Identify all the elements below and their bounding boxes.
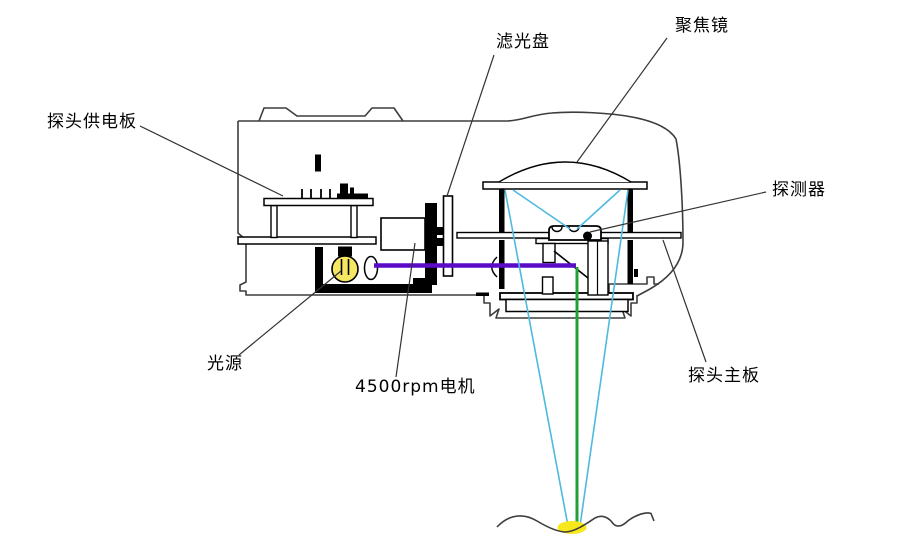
lens-mount-plate: [483, 182, 647, 189]
support-post-left-lower: [543, 277, 554, 294]
leader-power-board: [140, 126, 283, 196]
standoff-pin: [315, 155, 321, 172]
power-board-leg-left: [271, 206, 277, 238]
motor-foot: [413, 278, 427, 288]
label-power-board: 探头供电板: [47, 112, 137, 132]
lamp-bulb: [332, 256, 358, 282]
power-board-top: [264, 199, 373, 206]
motor-body: [381, 218, 425, 250]
lamp-cap: [338, 247, 352, 257]
label-focus-lens: 聚焦镜: [675, 16, 729, 36]
leader-focus-lens: [577, 38, 667, 162]
collection-ray-inner-left: [513, 190, 570, 229]
power-board-pins: [302, 189, 330, 199]
probe-casing: [238, 108, 683, 318]
bottom-plate-left-stub: [476, 293, 489, 297]
diagram-canvas: [0, 0, 912, 550]
detector-housing: [549, 226, 601, 240]
bottom-plate-lower: [506, 300, 628, 312]
label-light-source: 光源: [207, 354, 243, 374]
probe-structure-diagram: 探头供电板 滤光盘 聚焦镜 探测器 光源 4500rpm电机 探头主板: [0, 0, 912, 550]
casing-top-tab: [259, 108, 403, 121]
lamp: [332, 247, 358, 283]
motor-shaft-tab-lower: [437, 238, 443, 246]
leader-filter-disk: [447, 55, 494, 196]
leader-motor: [396, 243, 415, 377]
label-main-board: 探头主板: [688, 366, 760, 386]
motor-shaft-tab-upper: [437, 227, 443, 235]
focus-lens-dome: [499, 162, 631, 182]
detector-post-left: [543, 244, 555, 263]
condenser-lens: [365, 257, 378, 280]
leader-main-board: [663, 240, 706, 362]
label-detector: 探测器: [772, 180, 826, 200]
leader-light-source: [239, 271, 341, 355]
collection-ray-inner-right: [577, 190, 620, 229]
label-filter-disk: 滤光盘: [496, 32, 550, 52]
motor-assembly: [381, 203, 443, 288]
motor-flange: [425, 203, 437, 285]
detector-element: [583, 232, 592, 241]
power-board-assembly: [238, 155, 376, 245]
plate-tick: [634, 269, 638, 277]
label-motor: 4500rpm电机: [355, 377, 476, 397]
power-board-leg-right: [351, 206, 357, 238]
leader-detector: [590, 192, 766, 232]
power-board-components: [337, 184, 368, 199]
